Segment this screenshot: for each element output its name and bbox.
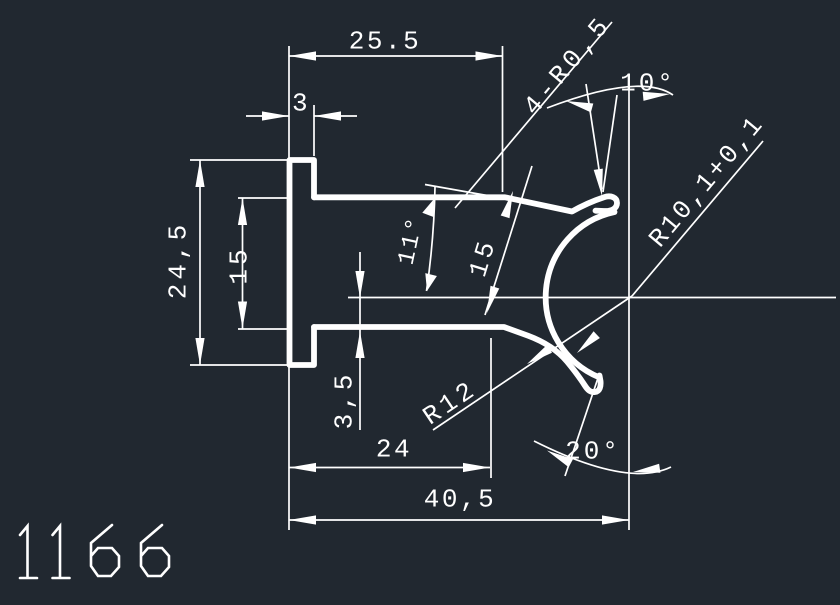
svg-text:15: 15 bbox=[224, 245, 254, 284]
svg-text:40,5: 40,5 bbox=[424, 484, 496, 514]
svg-text:3: 3 bbox=[292, 88, 310, 118]
svg-text:3,5: 3,5 bbox=[329, 371, 359, 430]
svg-text:10°: 10° bbox=[620, 68, 676, 98]
svg-text:20°: 20° bbox=[565, 436, 621, 466]
svg-text:25.5: 25.5 bbox=[349, 26, 421, 56]
svg-text:24,5: 24,5 bbox=[163, 221, 193, 299]
svg-text:24: 24 bbox=[376, 434, 412, 464]
